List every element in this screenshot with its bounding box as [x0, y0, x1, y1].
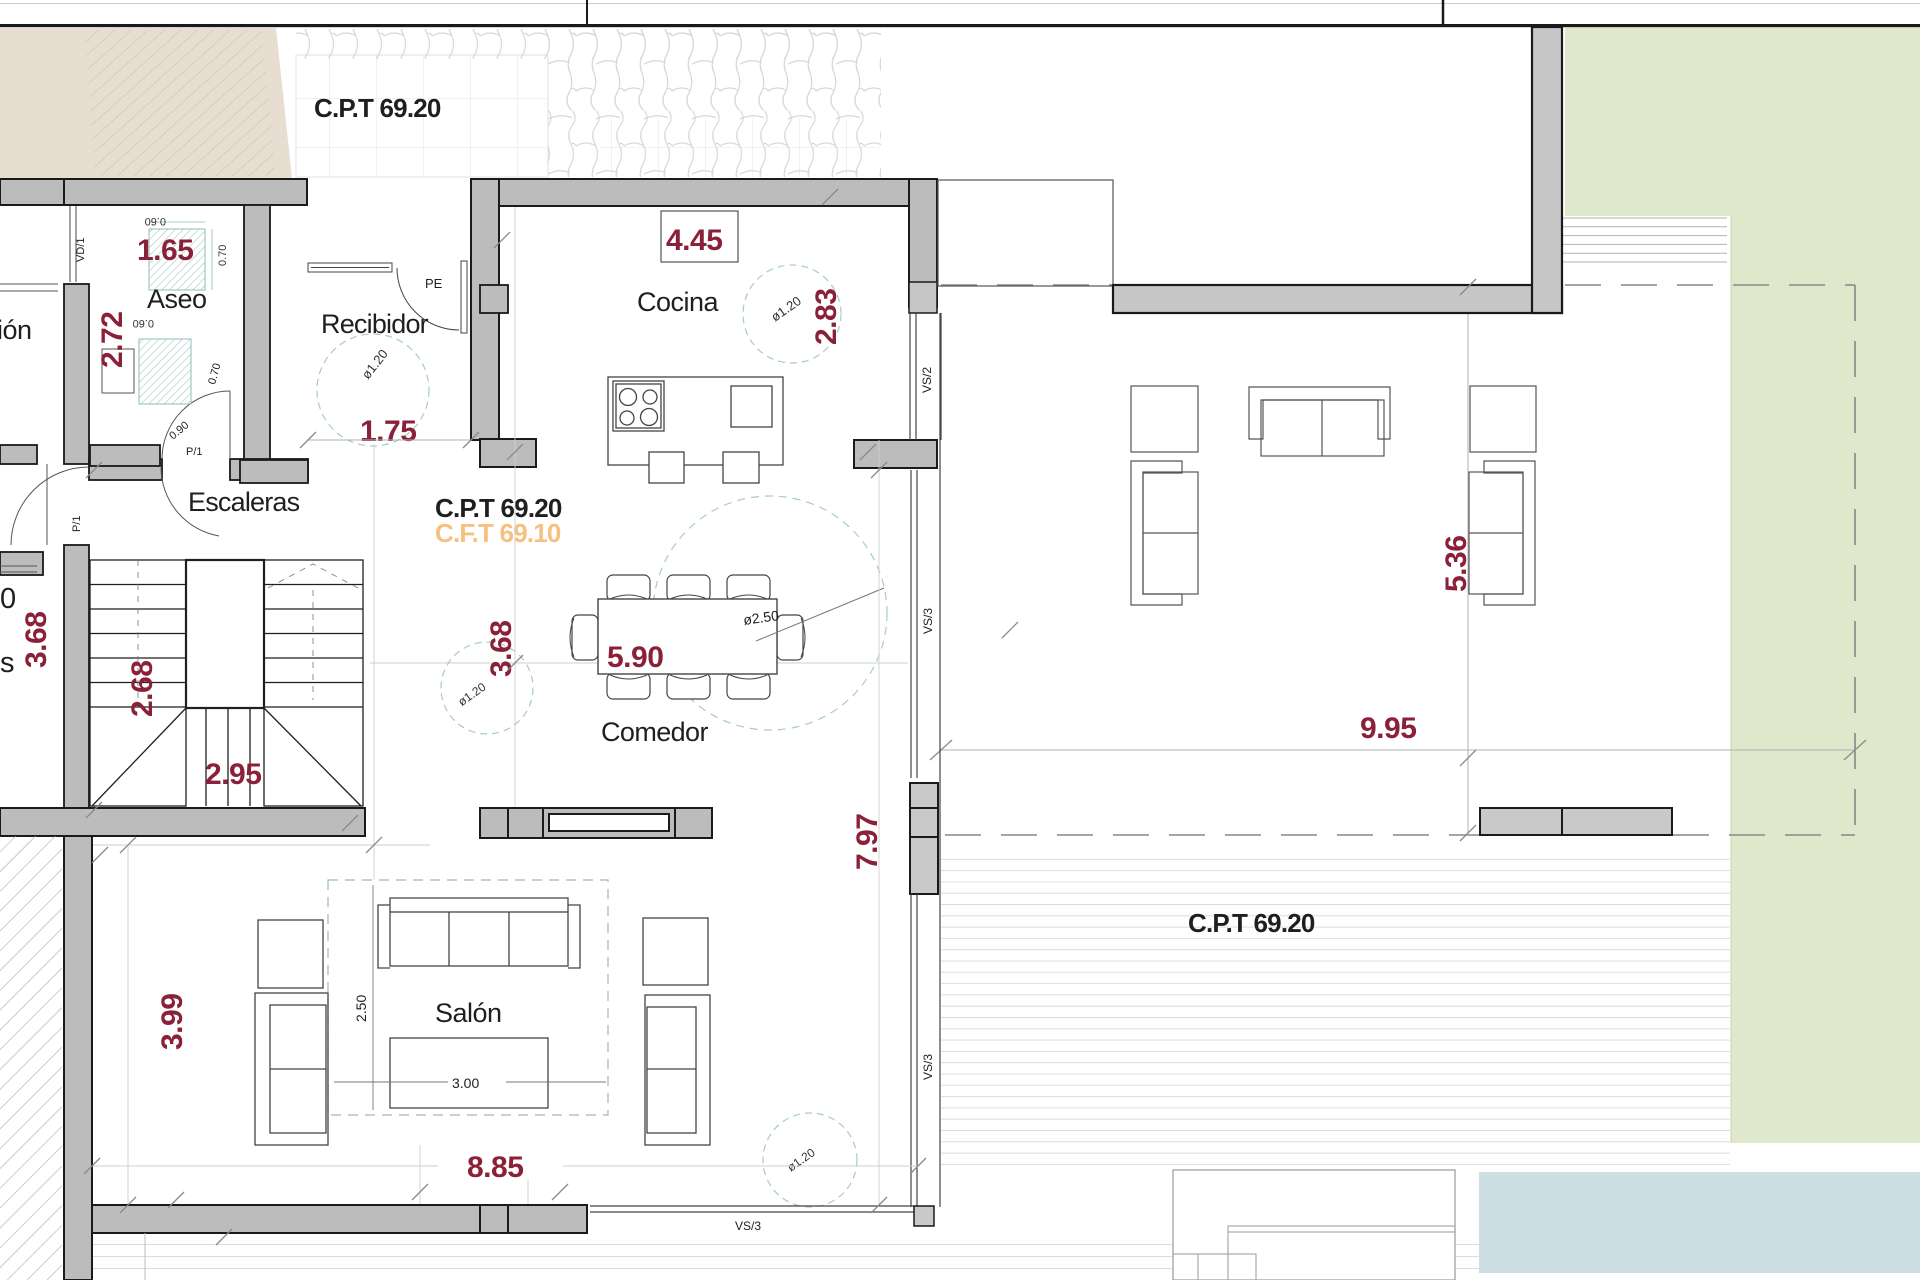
svg-text:0: 0 [0, 583, 16, 615]
svg-text:VS/3: VS/3 [921, 1054, 935, 1080]
svg-text:2.72: 2.72 [96, 312, 129, 368]
svg-text:1.75: 1.75 [360, 415, 416, 448]
svg-text:3.68: 3.68 [485, 621, 518, 677]
svg-text:8.85: 8.85 [467, 1151, 523, 1184]
svg-text:s: s [0, 647, 15, 679]
svg-text:5.36: 5.36 [1440, 536, 1473, 592]
svg-text:VS/3: VS/3 [735, 1219, 761, 1233]
svg-text:ión: ión [0, 315, 32, 345]
svg-text:2.83: 2.83 [810, 289, 843, 345]
svg-text:PE: PE [425, 276, 443, 291]
svg-text:Salón: Salón [435, 998, 502, 1028]
svg-text:0.60: 0.60 [145, 215, 166, 227]
svg-text:C.F.T 69.10: C.F.T 69.10 [435, 518, 561, 548]
svg-text:5.90: 5.90 [607, 641, 663, 674]
svg-text:Aseo: Aseo [147, 284, 207, 314]
svg-text:0.70: 0.70 [217, 245, 229, 266]
svg-text:2.68: 2.68 [126, 661, 159, 717]
svg-text:2.95: 2.95 [205, 758, 261, 791]
svg-text:C.P.T 69.20: C.P.T 69.20 [1188, 908, 1315, 938]
svg-text:Recibidor: Recibidor [321, 309, 429, 339]
svg-text:P/1: P/1 [71, 515, 83, 532]
svg-text:VD/1: VD/1 [75, 238, 87, 262]
svg-text:2.50: 2.50 [353, 995, 369, 1022]
svg-text:3.68: 3.68 [20, 612, 53, 668]
svg-text:3.99: 3.99 [156, 994, 189, 1050]
svg-text:0.60: 0.60 [133, 317, 154, 329]
svg-text:P/1: P/1 [186, 446, 203, 458]
svg-text:3.00: 3.00 [452, 1075, 479, 1091]
svg-text:Cocina: Cocina [637, 287, 720, 317]
svg-text:Comedor: Comedor [601, 717, 708, 747]
svg-text:VS/3: VS/3 [921, 608, 935, 634]
svg-text:Escaleras: Escaleras [188, 487, 300, 517]
svg-text:VS/2: VS/2 [920, 367, 934, 393]
svg-text:4.45: 4.45 [666, 224, 722, 257]
svg-text:9.95: 9.95 [1360, 712, 1416, 745]
svg-text:C.P.T 69.20: C.P.T 69.20 [314, 93, 441, 123]
svg-text:1.65: 1.65 [137, 234, 193, 267]
